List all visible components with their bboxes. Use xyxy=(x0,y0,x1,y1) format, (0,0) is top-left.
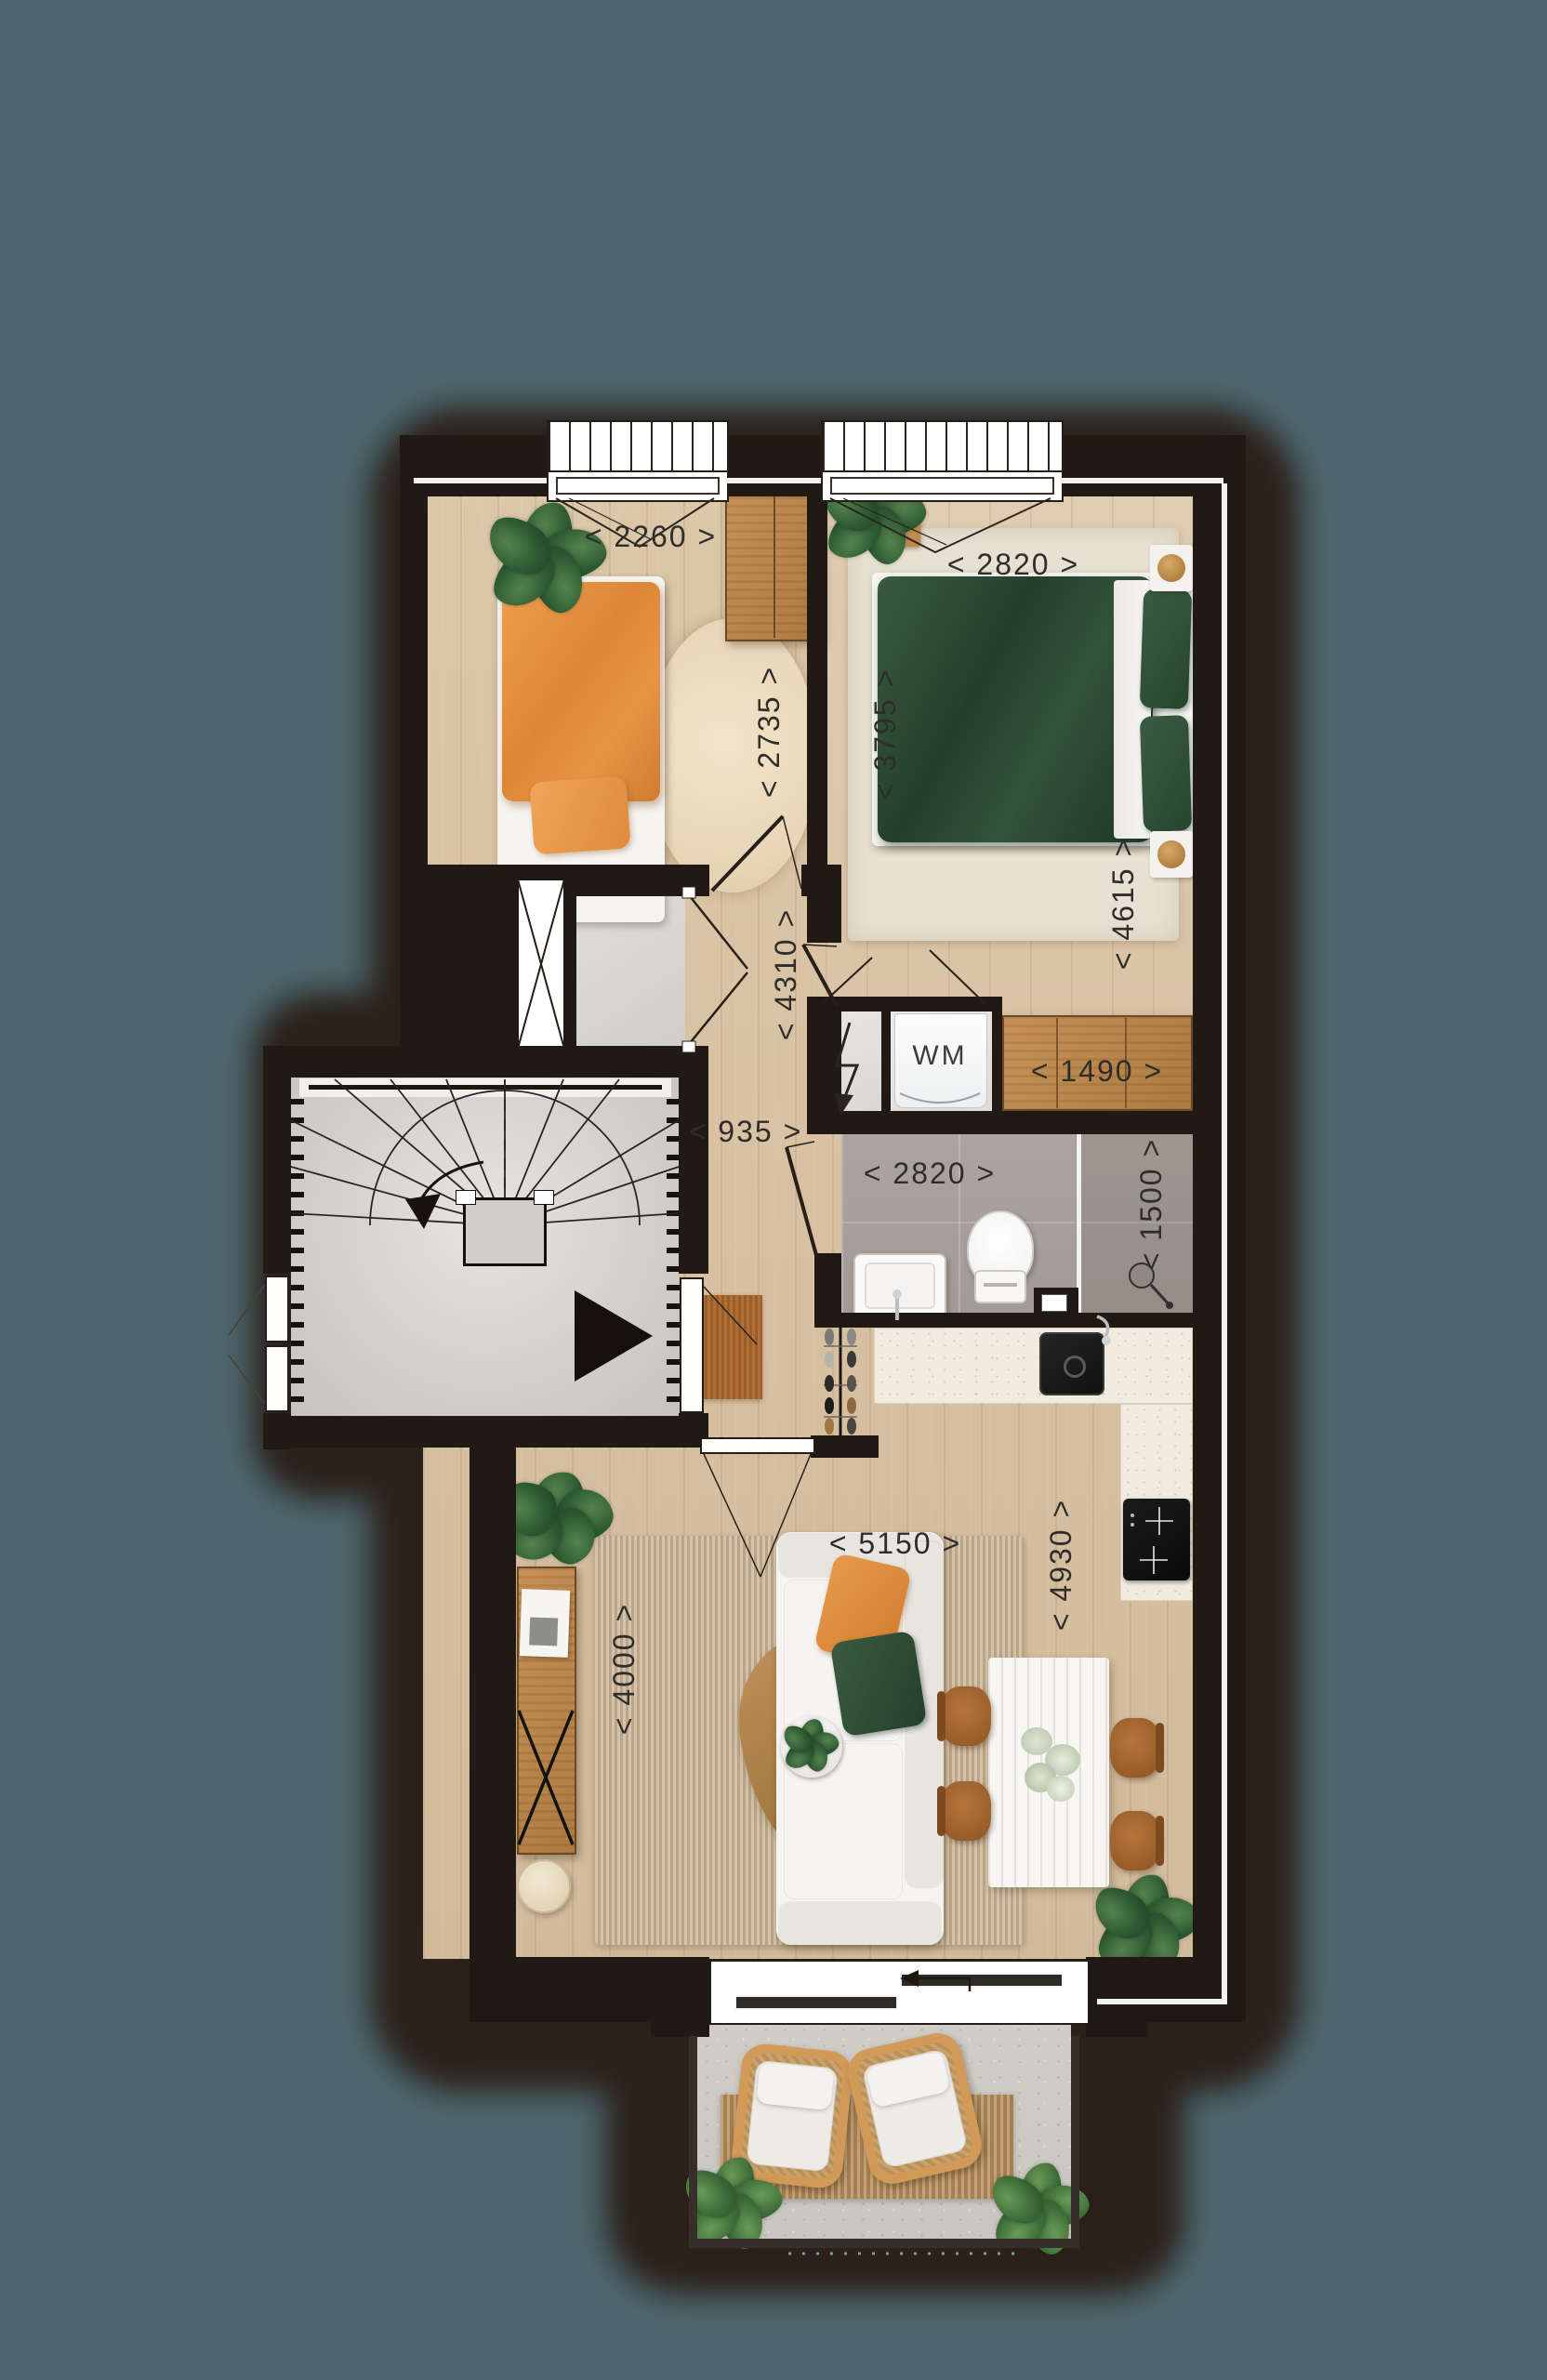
door-jamb xyxy=(682,887,695,898)
door-entrance-leaf xyxy=(680,1277,704,1413)
door-exterior-swings xyxy=(229,1285,265,1404)
door-meter-closet xyxy=(822,958,872,1004)
dim-label-living-width: < 5150 > xyxy=(821,1527,970,1560)
dim-label-bedroom1-depth: < 2735 > xyxy=(752,662,786,801)
door-exterior-leaf xyxy=(265,1345,289,1412)
door-living-leaf xyxy=(700,1437,815,1454)
stair-newel-tab xyxy=(456,1190,476,1205)
hob-zones xyxy=(1130,1507,1173,1574)
dim-label-bedroom2-length: < 4615 > xyxy=(1106,834,1140,973)
dim-label-bedroom2-width: < 2820 > xyxy=(939,548,1088,581)
arrow-left-icon xyxy=(900,1970,970,1991)
floorplan-canvas: < 2260 > < 2820 > < 2735 > < 3795 > < 43… xyxy=(0,0,1547,2380)
washing-machine-label: WM xyxy=(903,1038,977,1075)
dim-label-bathroom-depth: < 1500 > xyxy=(1134,1134,1168,1274)
door-exterior-leaf xyxy=(265,1276,289,1342)
door-entrance-swing xyxy=(704,1287,757,1344)
duct-cross-icon xyxy=(518,879,564,1049)
dim-label-bedroom1-width: < 2260 > xyxy=(576,520,725,553)
dim-label-bathroom-width: < 2820 > xyxy=(855,1157,1004,1190)
sink-faucet xyxy=(892,1289,902,1320)
door-living-swing xyxy=(704,1454,811,1577)
shoe-rack xyxy=(824,1324,857,1437)
door-bedroom1 xyxy=(712,816,801,891)
door-bathroom xyxy=(787,1142,816,1255)
stair-void xyxy=(463,1197,547,1266)
dim-label-living-west-depth: < 4000 > xyxy=(607,1599,641,1739)
dim-label-living-depth: < 4930 > xyxy=(1044,1495,1078,1634)
wm-drum-arc xyxy=(900,1093,980,1103)
dim-label-hall-width: < 935 > xyxy=(671,1115,820,1148)
dim-label-bedroom2-depth: < 3795 > xyxy=(868,665,902,804)
triangle-right-icon xyxy=(575,1290,653,1382)
dim-label-hall-length: < 4310 > xyxy=(769,905,802,1044)
x-frame-decor xyxy=(519,1711,573,1844)
kitchen-faucet xyxy=(1097,1316,1111,1345)
lightning-arrow-icon xyxy=(835,1023,857,1116)
door-bedroom2 xyxy=(803,945,837,1006)
linework-overlay xyxy=(0,0,1547,2380)
door-storage-closet xyxy=(690,896,747,1043)
door-wm-closet xyxy=(930,950,985,1004)
dim-label-closet-width: < 1490 > xyxy=(1023,1054,1171,1088)
stair-newel-tab xyxy=(534,1190,554,1205)
door-jamb xyxy=(682,1041,695,1052)
